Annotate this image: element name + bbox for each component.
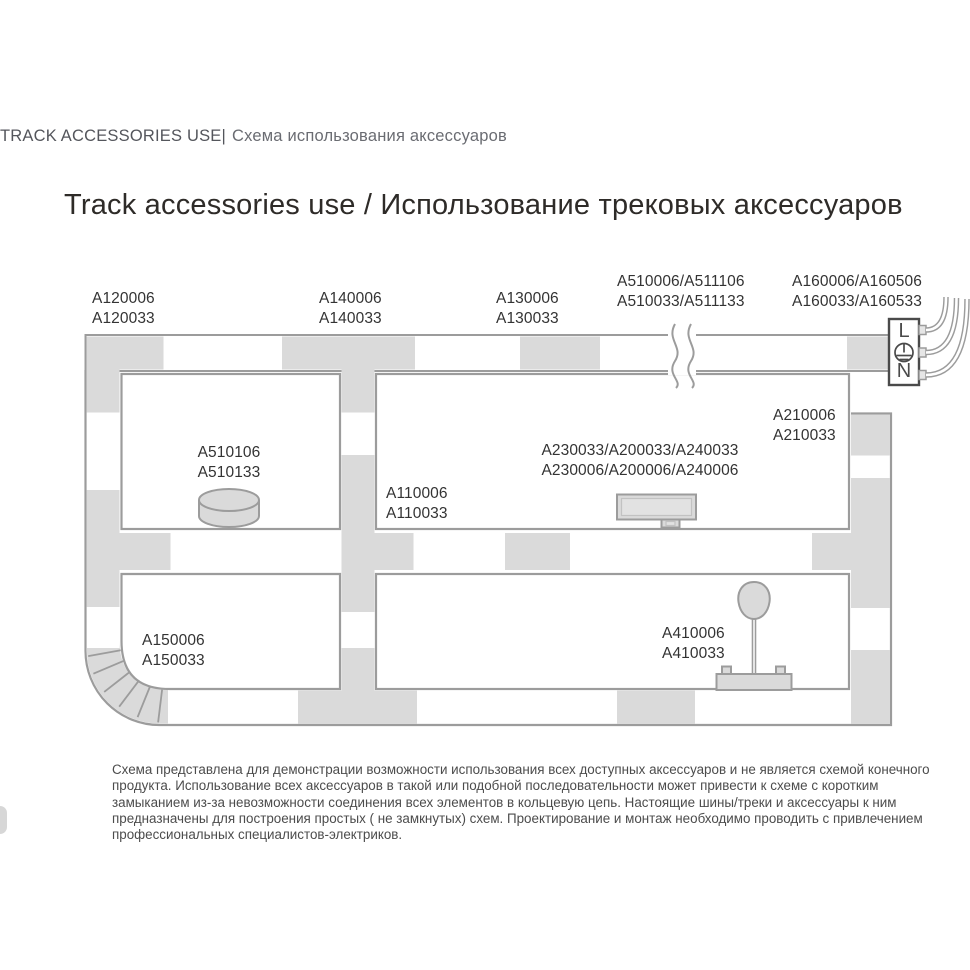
- line-terminal-label: L: [889, 321, 919, 341]
- label-a110000: A110006A110033: [386, 484, 448, 524]
- label-a510-track: A510006/A511106A510033/A511133: [617, 272, 745, 312]
- label-a120000: A120006A120033: [92, 289, 155, 329]
- footnote-text: Схема представлена для демонстрации возм…: [112, 762, 944, 843]
- puck-cylinder-icon: [199, 489, 259, 527]
- neutral-terminal-label: N: [889, 361, 919, 381]
- label-a210000: A210006A210033: [773, 406, 836, 446]
- label-a160000: A160006/A160506A160033/A160533: [792, 272, 922, 312]
- catalog-page: TRACK ACCESSORIES USE|Схема использовани…: [0, 0, 970, 970]
- label-a150000: A150006A150033: [142, 631, 205, 671]
- label-a130000: A130006A130033: [496, 289, 559, 329]
- label-a230000: A230033/A200033/A240033A230006/A200006/A…: [527, 441, 753, 481]
- track-inner-openings: [122, 374, 850, 689]
- top-track-band: [86, 335, 891, 371]
- power-wires-icon: [926, 297, 967, 375]
- label-a510106: A510106A510133: [159, 443, 299, 483]
- page-edge-artifact: [0, 806, 7, 834]
- label-a140000: A140006A140033: [319, 289, 382, 329]
- label-a410000: A410006A410033: [662, 624, 725, 664]
